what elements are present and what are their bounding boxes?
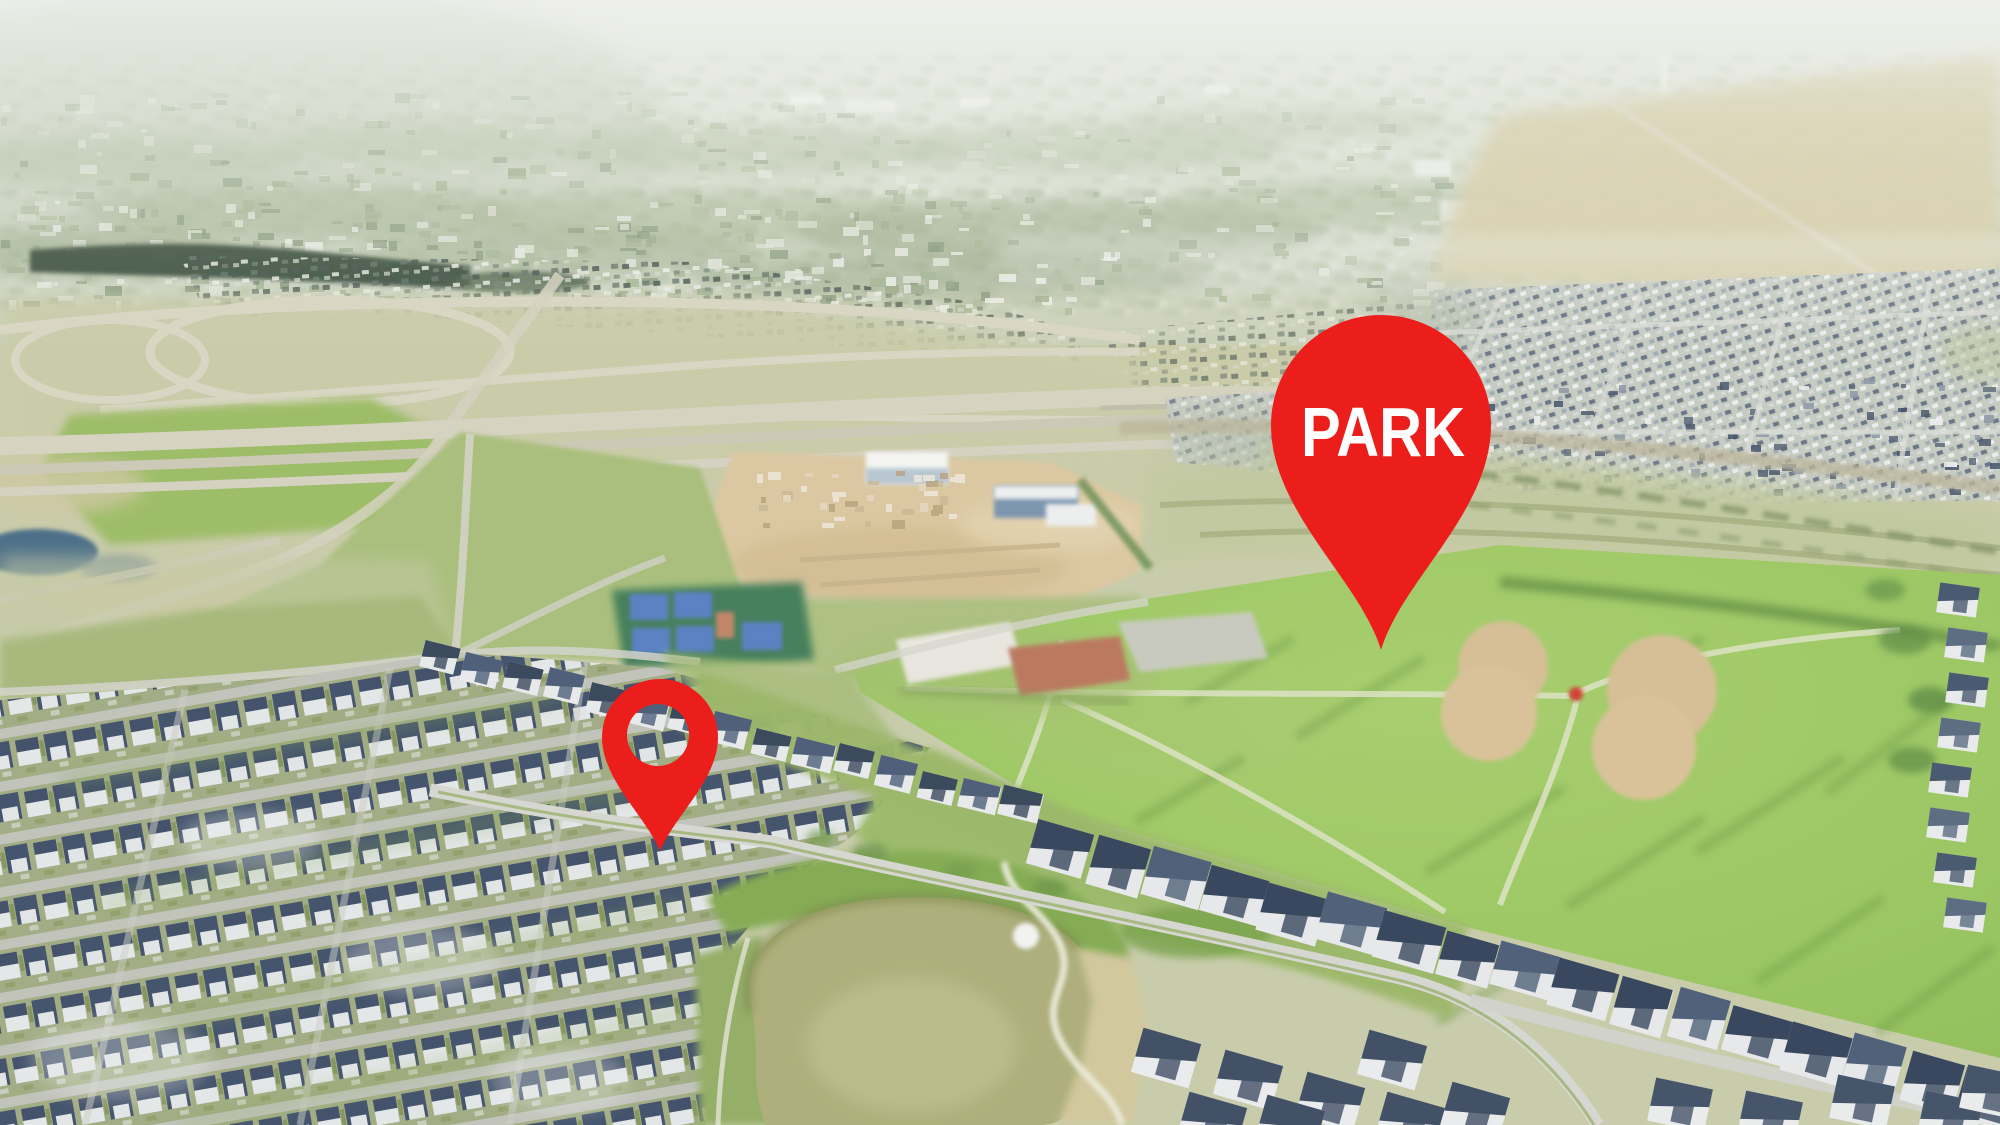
svg-text:PARK: PARK [1301, 393, 1465, 471]
